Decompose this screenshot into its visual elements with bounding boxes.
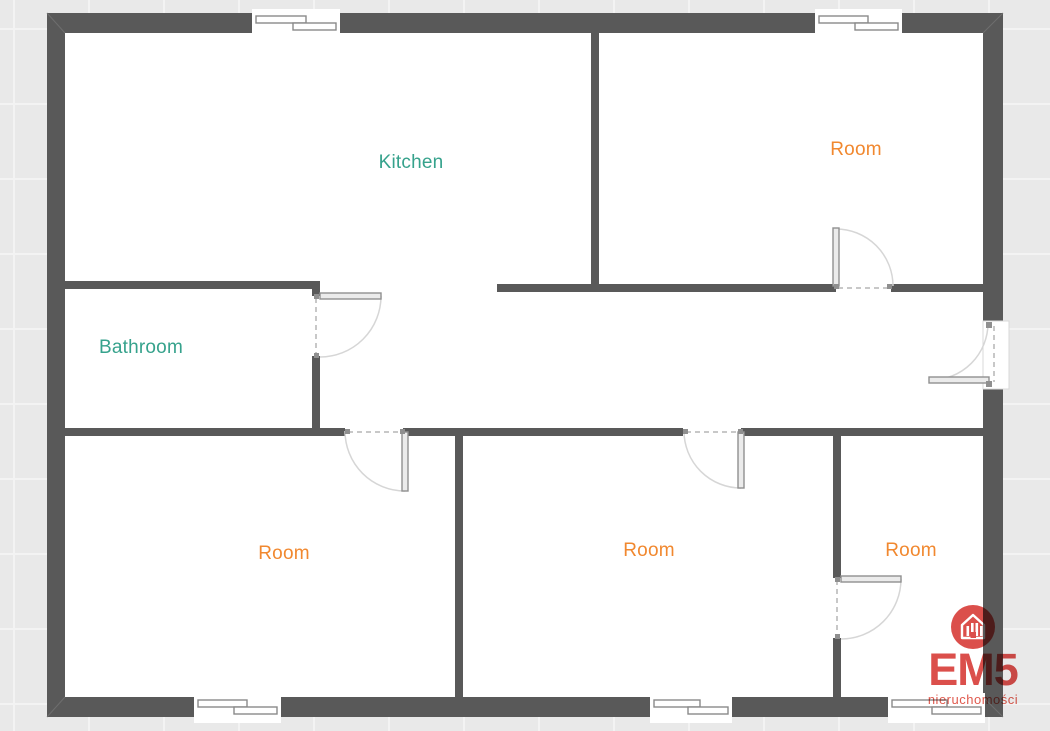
floorplan-canvas: Kitchen Room Bathroom Room Room Room EM5… xyxy=(0,0,1050,731)
room-label-top-right: Room xyxy=(830,139,881,161)
outer-wall-bottom xyxy=(47,697,1003,717)
wall-bathroom-right-lower xyxy=(312,356,320,436)
wall-kitchen-room-divider xyxy=(591,33,599,292)
wall-bathroom-right-upper xyxy=(312,281,320,296)
room-label-bathroom: Bathroom xyxy=(99,337,183,359)
wall-bottom-rooms-divider-2-upper xyxy=(833,428,841,578)
wall-hall-bottom-3 xyxy=(741,428,983,436)
window xyxy=(252,9,340,39)
door-leaf-bottom-right-room xyxy=(841,576,901,582)
room-label-kitchen: Kitchen xyxy=(379,152,444,174)
outer-wall-left xyxy=(47,13,65,717)
door-leaf-bottom-middle-room xyxy=(738,432,744,488)
wall-hall-bottom-1 xyxy=(65,428,345,436)
door-leaf-bottom-left-room xyxy=(402,432,408,491)
wall-hall-top-right xyxy=(891,284,983,292)
logo-name: EM5 xyxy=(907,647,1039,692)
window xyxy=(815,9,902,39)
room-label-bottom-right: Room xyxy=(885,540,936,562)
room-label-bottom-middle: Room xyxy=(623,540,674,562)
window xyxy=(194,693,281,723)
wall-hall-bottom-2 xyxy=(403,428,683,436)
floorplan-drawing xyxy=(0,0,1050,731)
wall-bottom-rooms-divider-2-lower xyxy=(833,638,841,697)
wall-hall-top-left xyxy=(497,284,836,292)
door-leaf-entrance xyxy=(929,377,989,383)
door-leaf-bathroom xyxy=(320,293,381,299)
door-leaf-top-right-room xyxy=(833,228,839,286)
logo-subtitle: nieruchomości xyxy=(907,693,1039,706)
outer-wall-right-upper xyxy=(983,13,1003,321)
wall-bathroom-top xyxy=(65,281,320,289)
floor-area xyxy=(47,13,1003,717)
ems-logo: EM5 nieruchomości xyxy=(907,604,1039,706)
room-label-bottom-left: Room xyxy=(258,543,309,565)
wall-bottom-rooms-divider-1 xyxy=(455,428,463,697)
window xyxy=(650,693,732,723)
